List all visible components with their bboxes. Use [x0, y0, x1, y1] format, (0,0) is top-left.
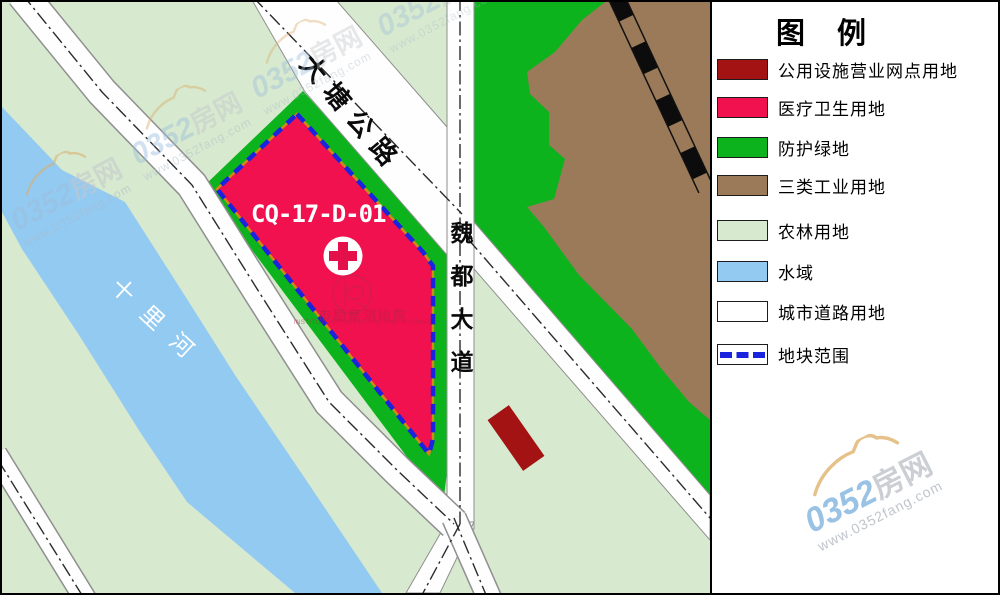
watermark-url: www.0352fang.com — [815, 478, 944, 553]
legend-label: 三类工业用地 — [778, 173, 886, 198]
legend-label: 城市道路用地 — [778, 299, 886, 324]
legend-item: 地块范围 — [717, 342, 850, 367]
legend-swatch — [717, 220, 768, 241]
watermark-brand-cn: 房网 — [868, 448, 937, 504]
dashed-line-sample — [720, 352, 765, 358]
legend-label: 防护绿地 — [778, 135, 850, 160]
legend-swatch — [717, 59, 768, 80]
legend-label: 公用设施营业网点用地 — [778, 57, 958, 82]
map-canvas: CQ-17-D-01 大塘公路 魏都大道 十里河 市勘察测绘院 INSTITUT… — [2, 2, 710, 593]
legend-item: 水域 — [717, 259, 814, 284]
legend-swatch — [717, 137, 768, 158]
legend-label: 医疗卫生用地 — [778, 95, 886, 120]
legend-swatch — [717, 301, 768, 322]
legend-item: 防护绿地 — [717, 135, 850, 160]
watermark: 0352房网 www.0352fang.com — [783, 415, 945, 553]
legend-item: 三类工业用地 — [717, 173, 886, 198]
planning-map-page: CQ-17-D-01 大塘公路 魏都大道 十里河 市勘察测绘院 INSTITUT… — [0, 0, 1000, 595]
watermark-brand: 0352房网 — [799, 446, 937, 539]
legend-item: 公用设施营业网点用地 — [717, 57, 958, 82]
legend-item: 医疗卫生用地 — [717, 95, 886, 120]
legend-item: 城市道路用地 — [717, 299, 886, 324]
hospital-cross-icon — [324, 237, 363, 276]
legend-swatch — [717, 261, 768, 282]
legend-swatch — [717, 97, 768, 118]
legend-title: 图 例 — [776, 10, 878, 52]
car-logo-icon — [798, 423, 907, 501]
legend-swatch-parcel-boundary — [717, 344, 768, 365]
legend-label: 地块范围 — [778, 342, 850, 367]
legend-swatch — [717, 175, 768, 196]
legend-panel: 图 例 公用设施营业网点用地 医疗卫生用地 防护绿地 三类工业用地 农林用地 水… — [710, 2, 1000, 593]
legend-label: 农林用地 — [778, 218, 850, 243]
legend-label: 水域 — [778, 259, 814, 284]
watermark-brand-num: 0352 — [799, 474, 882, 539]
legend-item: 农林用地 — [717, 218, 850, 243]
map-graphic — [2, 2, 710, 593]
